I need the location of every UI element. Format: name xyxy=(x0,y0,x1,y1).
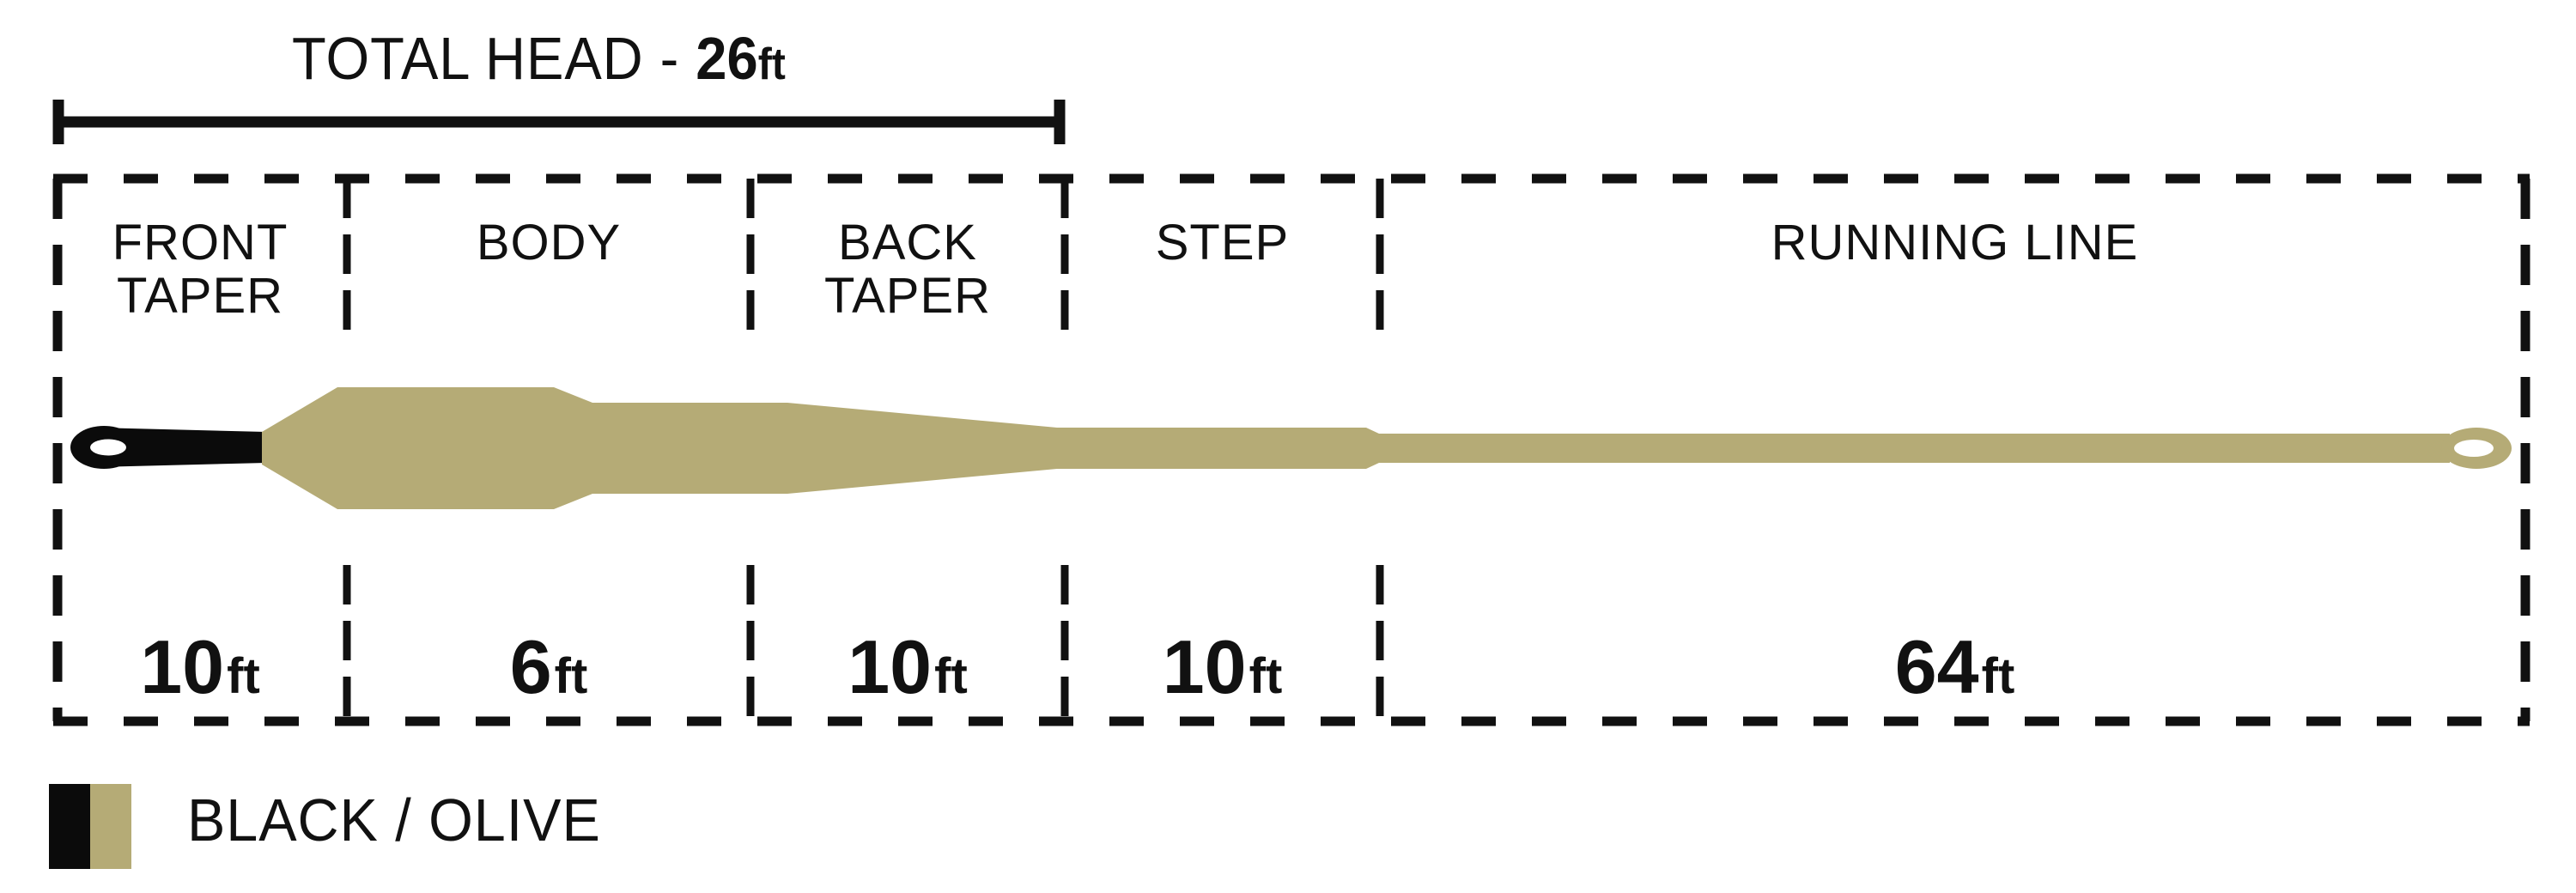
length-value: 10 xyxy=(848,629,932,705)
length-unit: ft xyxy=(227,652,260,702)
section-label-line: BACK xyxy=(750,216,1065,270)
length-unit: ft xyxy=(1982,652,2015,702)
section-label-line: TAPER xyxy=(750,270,1065,323)
section-label-line: RUNNING LINE xyxy=(1380,216,2530,270)
length-value: 64 xyxy=(1895,629,1979,705)
length-value: 6 xyxy=(510,629,552,705)
section-label-step: STEP xyxy=(1065,216,1380,270)
section-label-running-line: RUNNING LINE xyxy=(1380,216,2530,270)
section-label-line: TAPER xyxy=(53,270,347,323)
total-head-label: TOTAL HEAD - 26 ft xyxy=(292,28,786,88)
section-label-line: BODY xyxy=(347,216,750,270)
section-label-body: BODY xyxy=(347,216,750,270)
section-length-front-taper: 10 ft xyxy=(53,629,347,705)
section-label-front-taper: FRONT TAPER xyxy=(53,216,347,323)
end-loop-hole xyxy=(2454,440,2494,457)
length-unit: ft xyxy=(1249,652,1283,702)
section-length-body: 6 ft xyxy=(347,629,750,705)
total-head-unit: ft xyxy=(758,42,786,87)
section-length-back-taper: 10 ft xyxy=(750,629,1065,705)
legend-swatches xyxy=(49,784,131,869)
length-value: 10 xyxy=(140,629,224,705)
taper-diagram-graphic xyxy=(0,0,2576,893)
section-length-step: 10 ft xyxy=(1065,629,1380,705)
total-head-bracket xyxy=(53,100,1065,144)
section-length-running-line: 64 ft xyxy=(1380,629,2530,705)
length-value: 10 xyxy=(1163,629,1247,705)
section-label-line: FRONT xyxy=(53,216,347,270)
legend-swatch-black xyxy=(49,784,90,869)
section-label-back-taper: BACK TAPER xyxy=(750,216,1065,323)
length-unit: ft xyxy=(934,652,968,702)
line-profile xyxy=(70,387,2512,509)
legend-swatch-olive xyxy=(90,784,131,869)
front-loop-hole xyxy=(90,440,126,456)
total-head-label-text: TOTAL HEAD - xyxy=(292,28,696,88)
length-unit: ft xyxy=(555,652,588,702)
section-label-line: STEP xyxy=(1065,216,1380,270)
line-profile-olive xyxy=(262,387,2450,509)
fly-line-taper-diagram: TOTAL HEAD - 26 ft FRONT TAPER BODY BACK… xyxy=(0,0,2576,893)
legend-label: BLACK / OLIVE xyxy=(187,790,601,850)
total-head-value: 26 xyxy=(696,28,757,88)
